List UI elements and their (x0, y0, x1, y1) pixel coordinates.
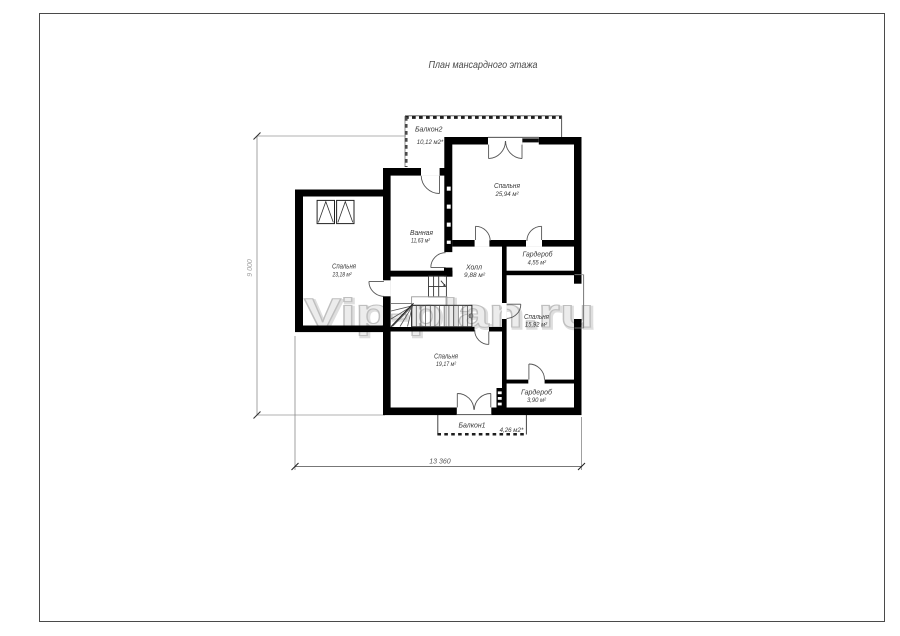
svg-text:9 000: 9 000 (247, 259, 254, 277)
svg-text:4,55 м²: 4,55 м² (528, 259, 547, 266)
svg-text:Гардероб: Гардероб (523, 251, 554, 259)
svg-text:4,26 м2*: 4,26 м2* (500, 427, 524, 434)
svg-text:Спальня: Спальня (434, 352, 458, 360)
svg-text:11,63 м²: 11,63 м² (411, 238, 431, 245)
svg-text:25,94 м²: 25,94 м² (495, 191, 520, 198)
svg-text:Балкон2: Балкон2 (415, 126, 443, 134)
svg-text:23,18 м²: 23,18 м² (332, 272, 353, 279)
svg-text:Холл: Холл (465, 263, 482, 271)
svg-text:19,17 м²: 19,17 м² (436, 361, 457, 368)
svg-text:План мансардного этажа: План мансардного этажа (429, 60, 538, 71)
svg-text:Спальня: Спальня (332, 263, 356, 271)
svg-text:9,88 м²: 9,88 м² (464, 272, 486, 279)
svg-text:Спальня: Спальня (494, 182, 520, 190)
svg-text:3,90 м²: 3,90 м² (527, 397, 547, 404)
svg-text:Ванная: Ванная (410, 229, 433, 237)
svg-text:Спальня: Спальня (524, 313, 549, 321)
svg-text:Балкон1: Балкон1 (459, 421, 486, 429)
svg-text:10,12 м2*: 10,12 м2* (417, 139, 444, 146)
svg-text:15,92 м²: 15,92 м² (525, 321, 548, 328)
svg-text:Гардероб: Гардероб (521, 389, 553, 397)
svg-text:13 360: 13 360 (429, 459, 451, 466)
